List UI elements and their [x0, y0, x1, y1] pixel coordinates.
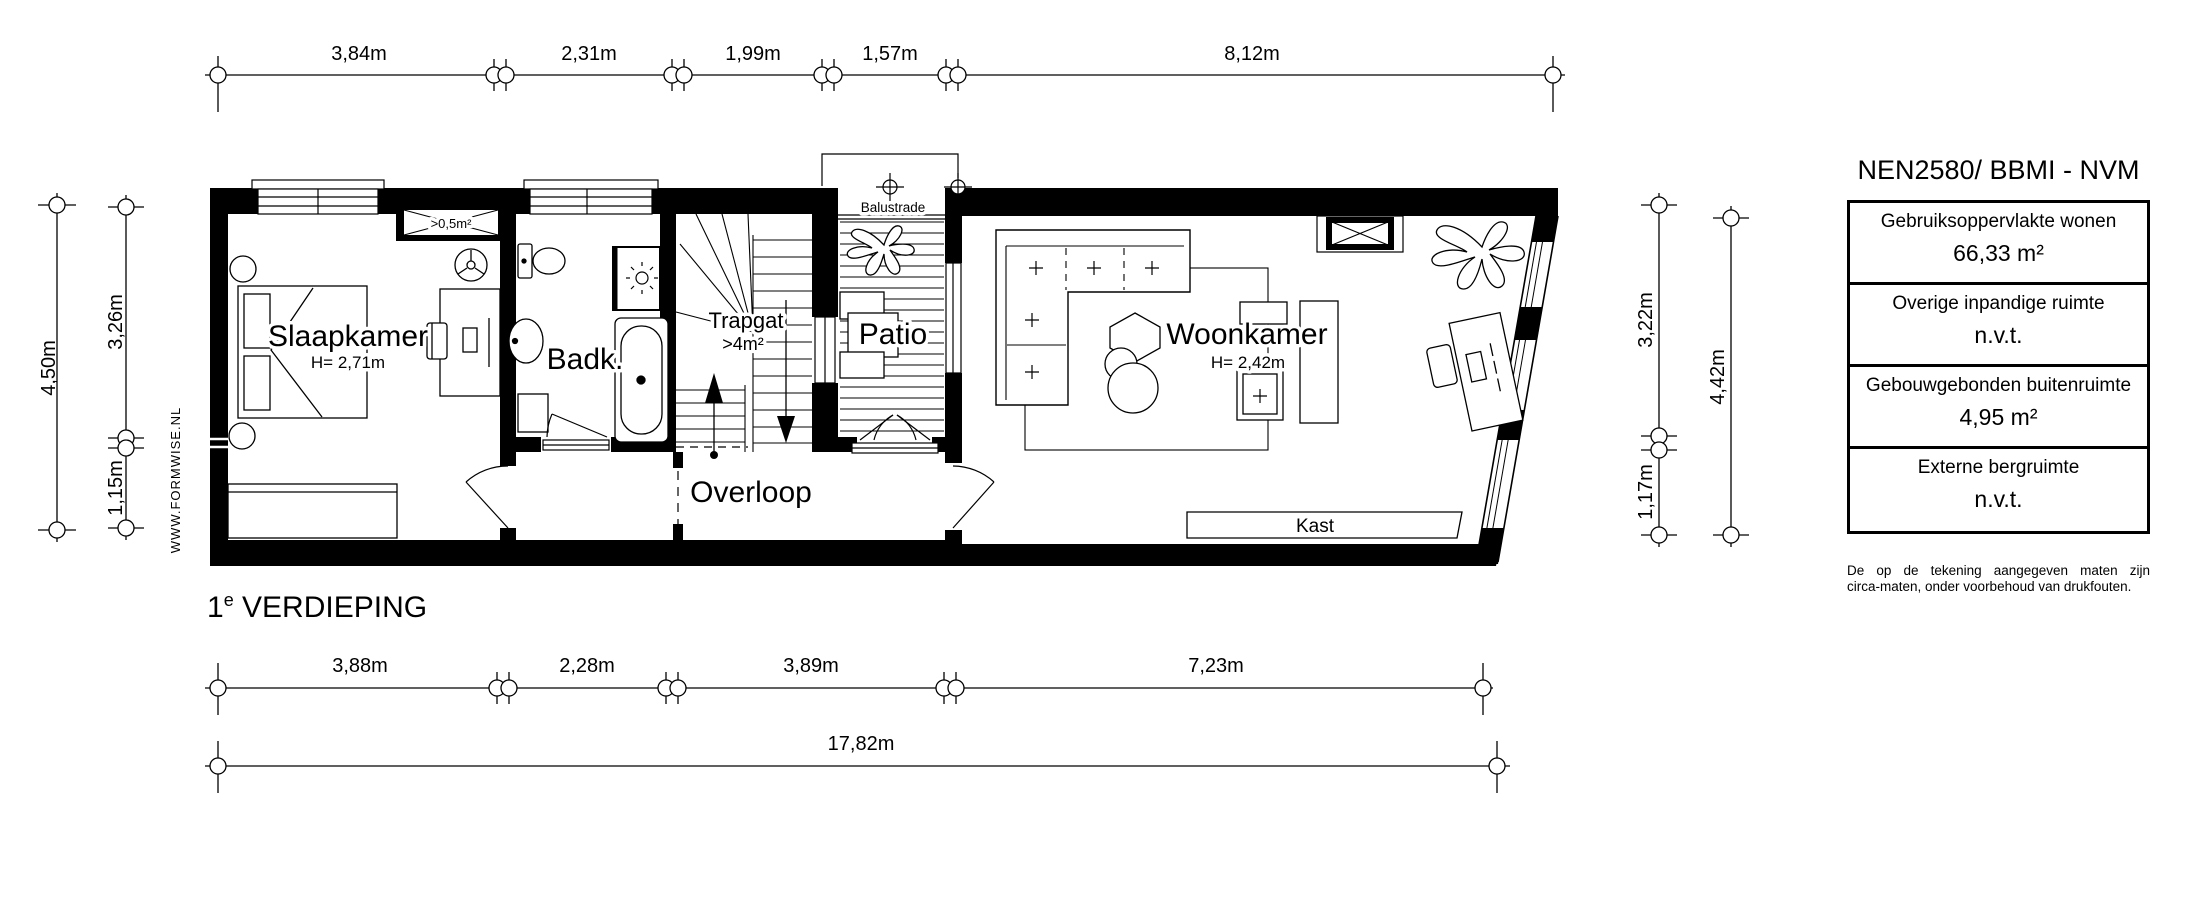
legend-row-label: Overige inpandige ruimte	[1850, 293, 2147, 315]
dim-right-inner-1: 3,22m	[1635, 292, 1657, 348]
patio-label: Patio	[859, 318, 927, 351]
dim-top-3: 1,99m	[725, 43, 781, 65]
patio-livingroom-window	[946, 263, 961, 373]
dim-right-outer: 4,42m	[1707, 349, 1729, 405]
bathtub	[615, 318, 668, 442]
living-room: Kast Woonkamer H= 2,42m	[953, 222, 1524, 538]
bathroom-door	[543, 414, 609, 450]
bedroom-window	[252, 180, 384, 214]
livingroom-door	[953, 466, 994, 528]
legend-row-label: Externe bergruimte	[1850, 457, 2147, 479]
watermark: WWW.FORMWISE.NL	[168, 407, 183, 553]
stairwell-patio-window	[815, 317, 835, 383]
dim-bottom-4: 7,23m	[1188, 655, 1244, 677]
legend-row: Gebouwgebonden buitenruimte 4,95 m²	[1850, 367, 2147, 449]
legend-row-value: n.v.t.	[1850, 486, 2147, 513]
livingroom-label: Woonkamer	[1166, 318, 1327, 351]
legend-row: Overige inpandige ruimte n.v.t.	[1850, 285, 2147, 367]
kast-closet: Kast	[1187, 512, 1462, 538]
legend-disclaimer: De op de tekening aangegeven maten zijn …	[1847, 563, 2150, 595]
desk-chair	[455, 249, 487, 281]
legend-title: NEN2580/ BBMI - NVM	[1847, 155, 2150, 186]
dim-bottom-1: 3,88m	[332, 655, 388, 677]
legend-row-label: Gebruiksoppervlakte wonen	[1850, 211, 2147, 233]
dim-left-inner-1: 3,26m	[105, 294, 127, 350]
shower	[613, 247, 660, 310]
dim-bottom-2: 2,28m	[559, 655, 615, 677]
kast-label: Kast	[1296, 516, 1335, 537]
bathroom-window	[524, 180, 658, 214]
dim-left-outer: 4,50m	[38, 340, 60, 396]
bedroom-label: Slaapkamer	[268, 320, 428, 353]
dim-top-2: 2,31m	[561, 43, 617, 65]
disclaimer-line-1: De op de tekening aangegeven maten zijn	[1847, 563, 2150, 579]
bedroom-door	[466, 466, 508, 528]
legend-row: Externe bergruimte n.v.t.	[1850, 449, 2147, 531]
dim-right-inner-2: 1,17m	[1635, 464, 1657, 520]
coffee-tables	[1105, 313, 1160, 413]
patio-doors	[852, 415, 938, 453]
toilet	[518, 244, 565, 278]
floor-title: 1e VERDIEPING	[207, 590, 427, 625]
dim-top-4: 1,57m	[862, 43, 918, 65]
legend-row: Gebruiksoppervlakte wonen 66,33 m²	[1850, 203, 2147, 285]
stairwell-label: Trapgat	[708, 308, 783, 333]
side-table-bottom	[229, 423, 255, 449]
dim-top-5: 8,12m	[1224, 43, 1280, 65]
legend-row-value: 4,95 m²	[1850, 404, 2147, 431]
bathroom-sink	[509, 319, 543, 363]
skylight-shaft	[1317, 216, 1403, 252]
legend-row-value: 66,33 m²	[1850, 240, 2147, 267]
stairwell: Trapgat >4m²	[676, 214, 812, 459]
bedroom-desk	[427, 289, 500, 396]
legend-box: Gebruiksoppervlakte wonen 66,33 m² Overi…	[1847, 200, 2150, 534]
livingroom-plant	[1432, 222, 1524, 289]
balustrade-label: Balustrade	[861, 200, 926, 215]
legend-row-value: n.v.t.	[1850, 322, 2147, 349]
dim-top-1: 3,84m	[331, 43, 387, 65]
side-table-top	[230, 256, 256, 282]
shaft-box: >0,5m²	[396, 203, 506, 241]
livingroom-height: H= 2,42m	[1211, 353, 1285, 372]
dim-left-inner-2: 1,15m	[105, 460, 127, 516]
bathroom: Badk.	[509, 244, 668, 450]
bathroom-label: Badk.	[547, 343, 624, 376]
shaft-label: >0,5m²	[431, 216, 472, 231]
dim-bottom-3: 3,89m	[783, 655, 839, 677]
livingroom-desk	[1426, 313, 1523, 431]
sofa	[996, 230, 1190, 405]
bedroom-height: H= 2,71m	[311, 353, 385, 372]
washer	[518, 394, 548, 432]
floorplan-page: 3,84m 2,31m 1,99m 1,57m 8,12m 3,88m 2,28…	[0, 0, 2193, 901]
desk-chair-2	[1426, 344, 1458, 388]
dim-bottom-total: 17,82m	[828, 733, 895, 755]
floor-title-number: 1	[207, 591, 224, 624]
floor-title-text: VERDIEPING	[234, 591, 427, 624]
legend-row-label: Gebouwgebonden buitenruimte	[1850, 375, 2147, 397]
floor-title-sup: e	[224, 590, 234, 610]
disclaimer-line-2: circa-maten, onder voorbehoud van drukfo…	[1847, 579, 2150, 595]
landing-label: Overloop	[690, 476, 812, 509]
bedroom: Slaapkamer H= 2,71m	[228, 249, 508, 538]
bedroom-closet	[228, 484, 397, 538]
landing: Overloop	[678, 455, 812, 537]
stairwell-area: >4m²	[722, 334, 764, 354]
legend: NEN2580/ BBMI - NVM Gebruiksoppervlakte …	[1847, 155, 2150, 534]
